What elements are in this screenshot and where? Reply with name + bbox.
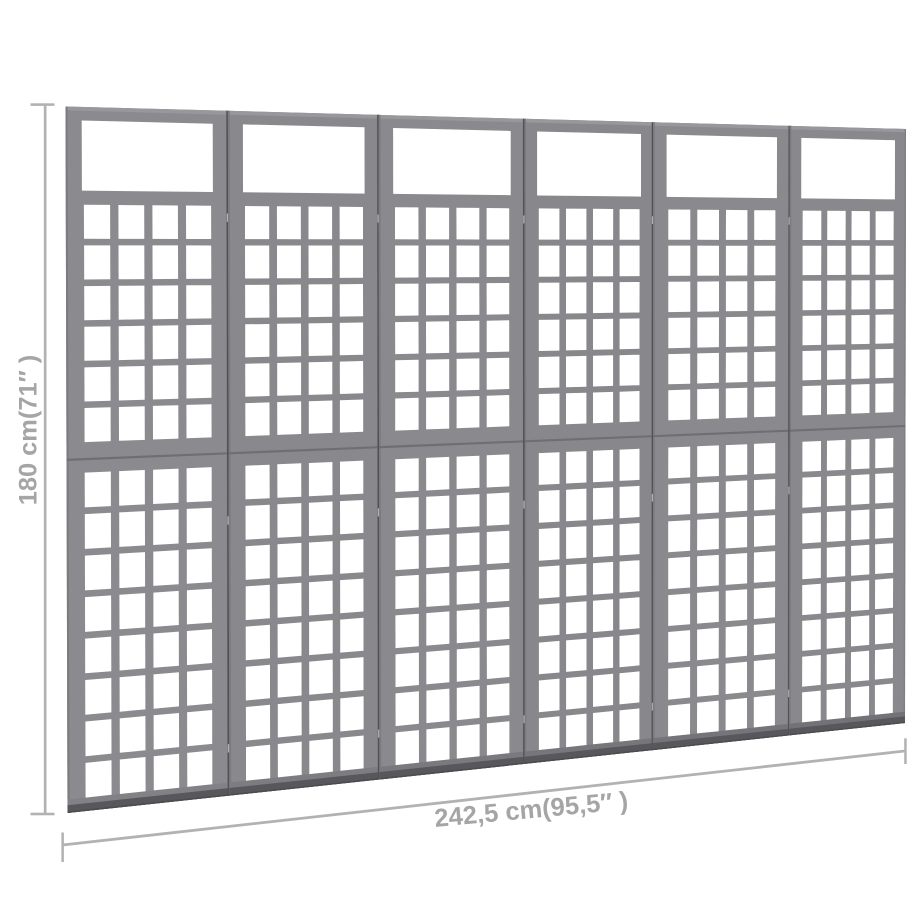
svg-text:180 cm(71″ ): 180 cm(71″ ) <box>15 355 43 505</box>
